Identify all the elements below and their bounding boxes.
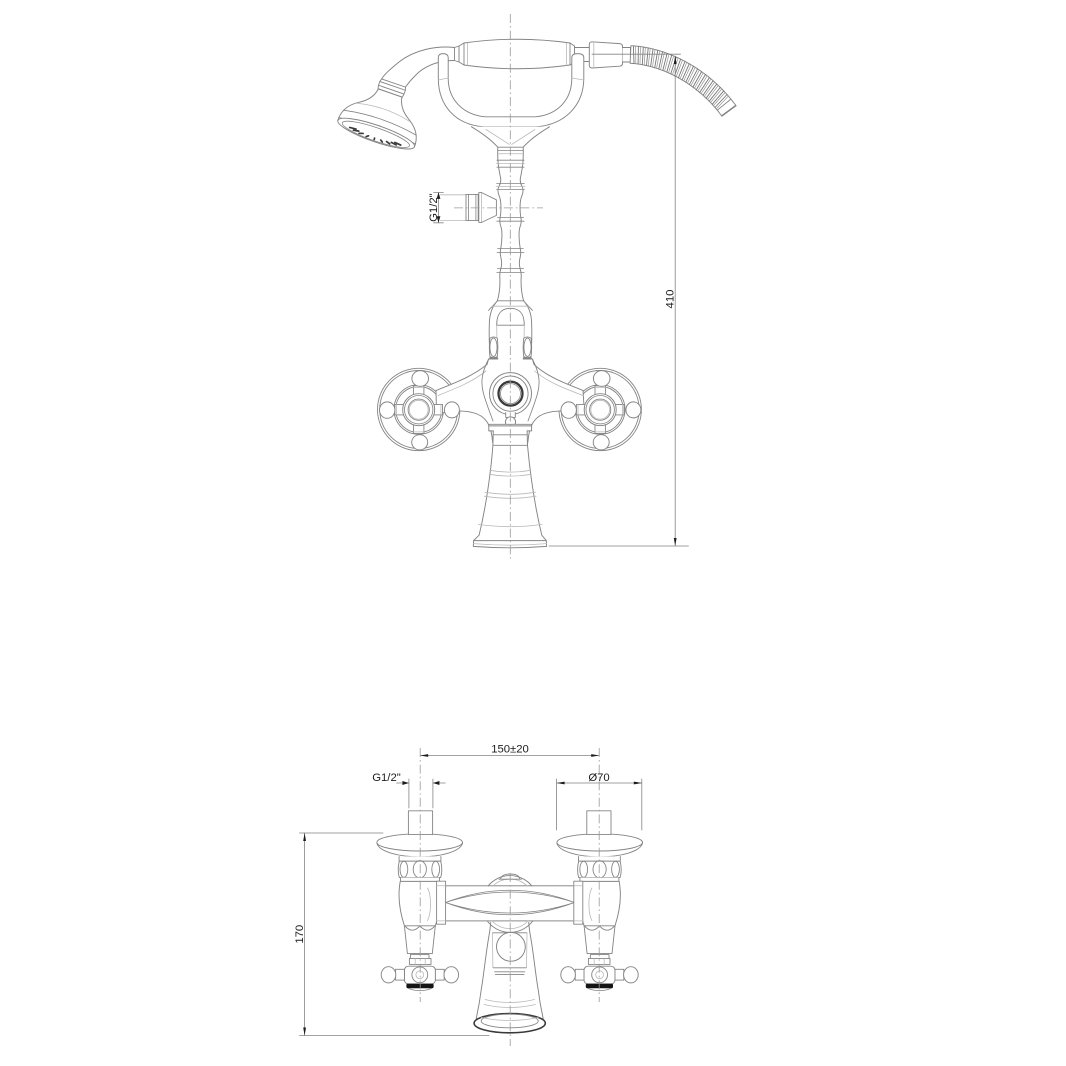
svg-text:G1/2": G1/2" xyxy=(428,193,440,222)
svg-text:410: 410 xyxy=(664,290,676,309)
svg-text:150±20: 150±20 xyxy=(491,744,529,756)
svg-text:170: 170 xyxy=(294,925,306,944)
svg-text:G1/2": G1/2" xyxy=(372,772,401,784)
